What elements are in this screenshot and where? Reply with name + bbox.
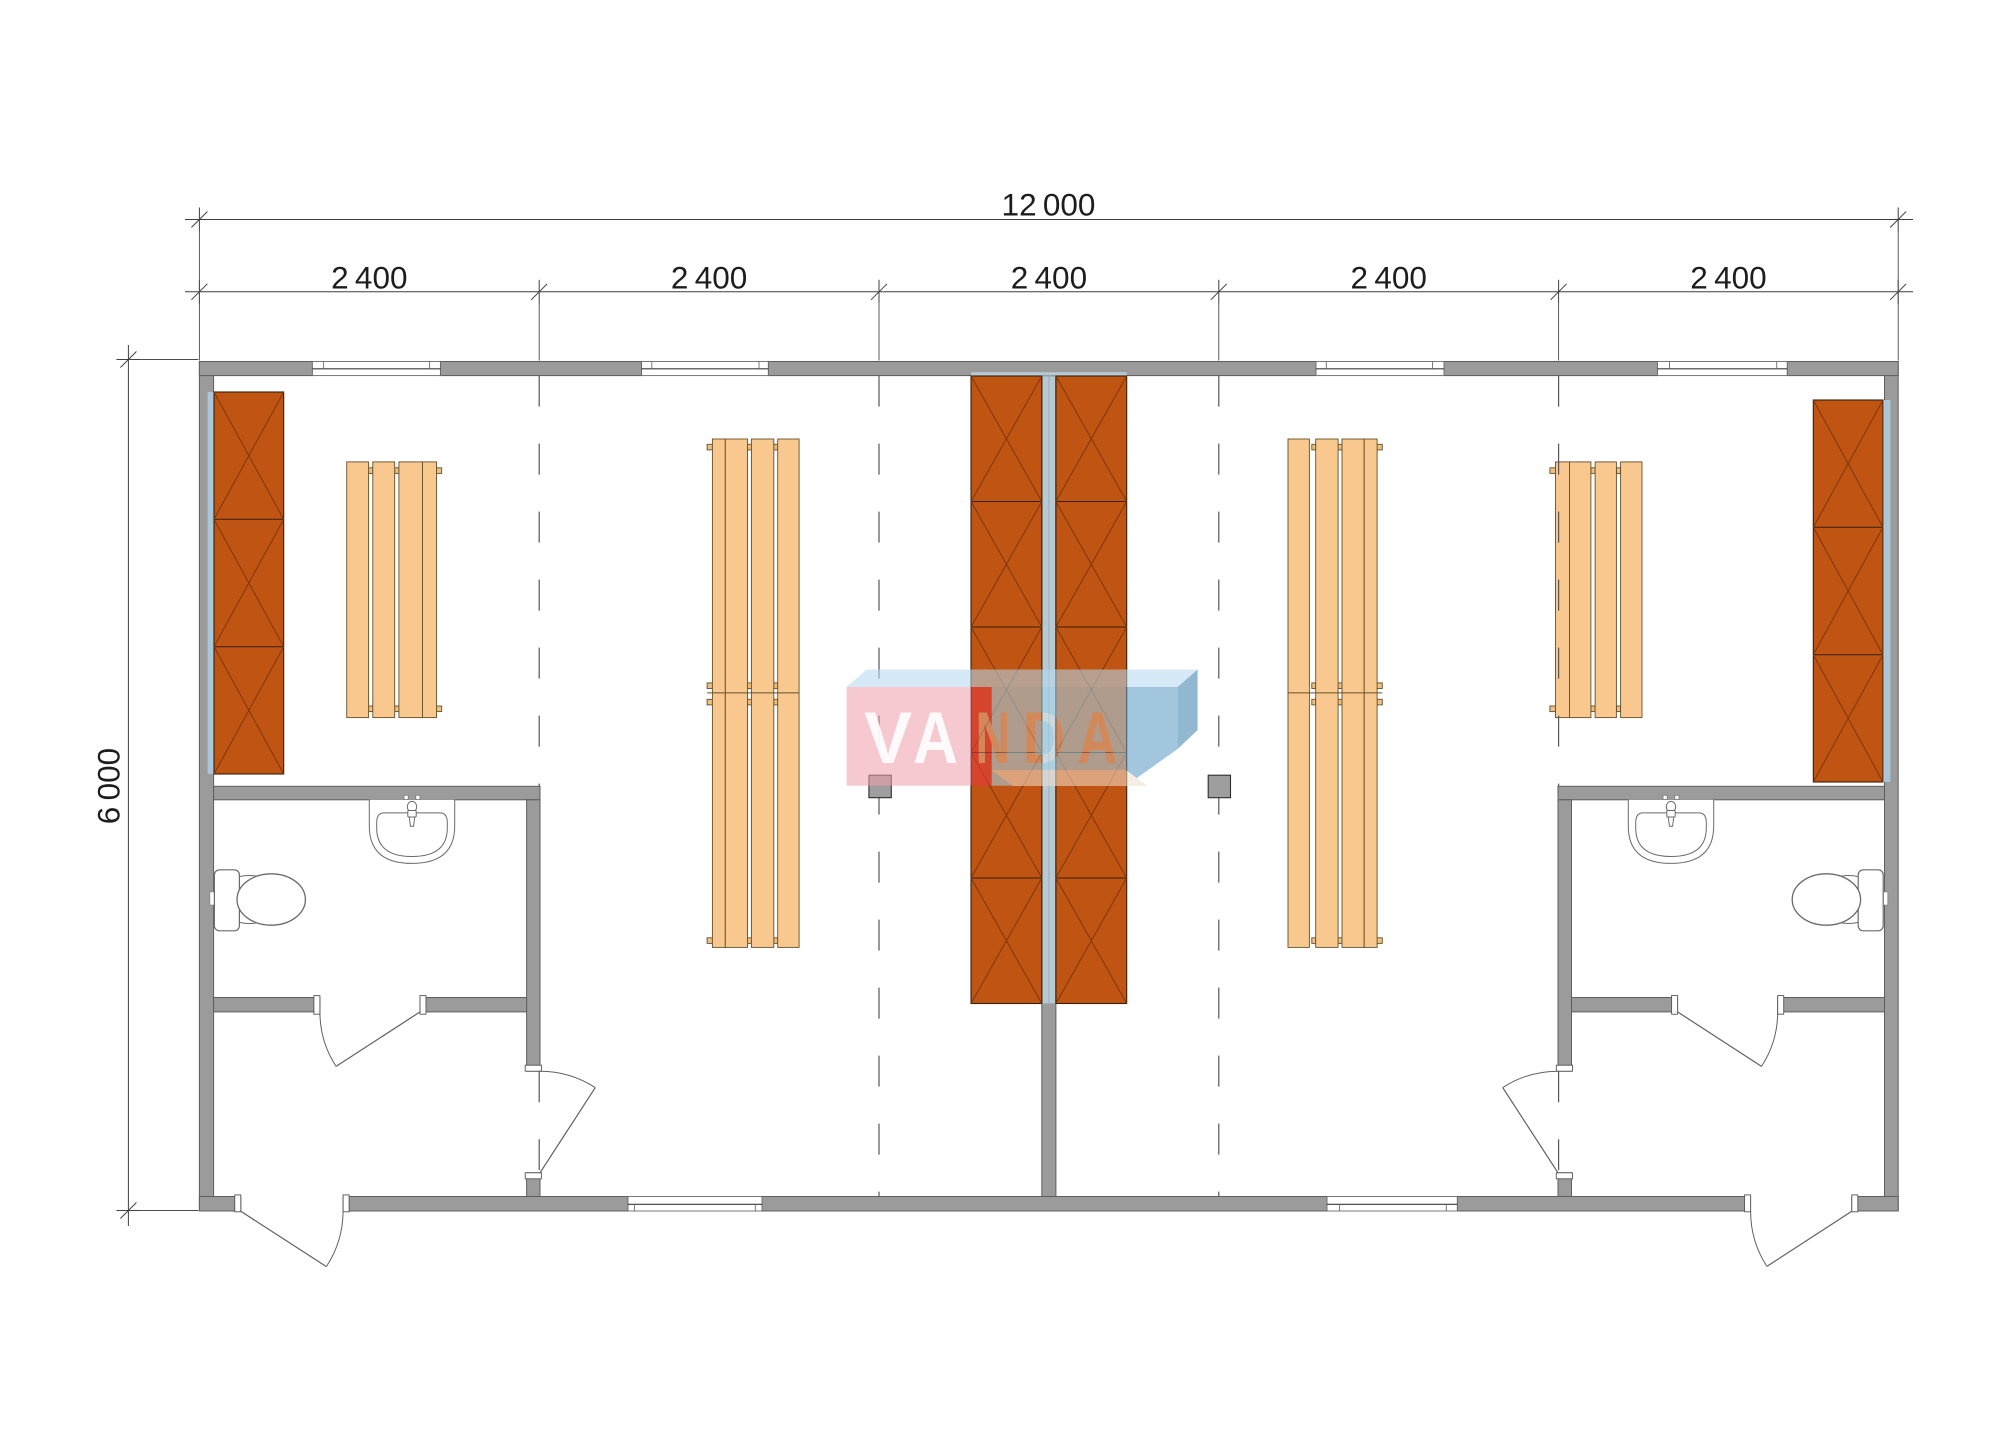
svg-text:6 000: 6 000 <box>91 748 127 824</box>
svg-text:A: A <box>913 698 958 779</box>
svg-text:12 000: 12 000 <box>1002 187 1096 223</box>
svg-text:D: D <box>1023 698 1066 779</box>
svg-text:2 400: 2 400 <box>1690 260 1766 296</box>
svg-text:V: V <box>864 698 912 779</box>
svg-text:2 400: 2 400 <box>1351 260 1427 296</box>
svg-text:2 400: 2 400 <box>331 260 407 296</box>
svg-text:N: N <box>976 698 1010 779</box>
svg-text:A: A <box>1078 698 1118 779</box>
svg-text:2 400: 2 400 <box>1011 260 1087 296</box>
svg-text:2 400: 2 400 <box>671 260 747 296</box>
